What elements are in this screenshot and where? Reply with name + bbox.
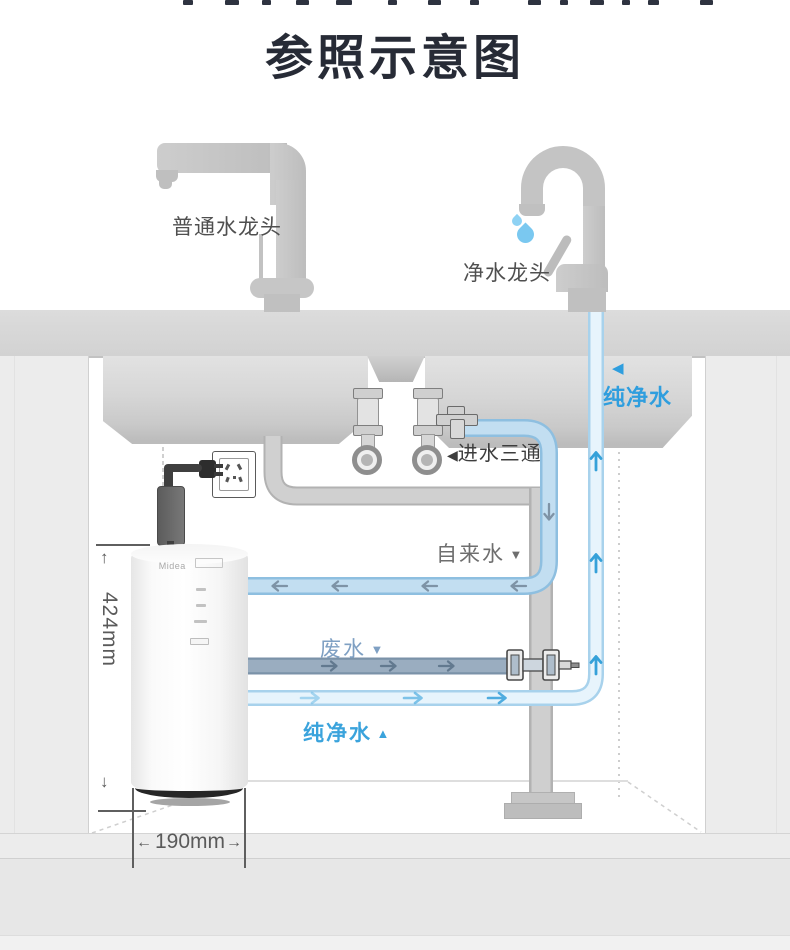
inlet-tee-label: ◀进水三通 xyxy=(447,437,542,466)
faucet-ordinary-label: 普通水龙头 xyxy=(172,211,282,241)
dim-arrow-right: → xyxy=(226,834,242,852)
device-height-value: 424mm xyxy=(97,592,121,667)
dim-tick-left xyxy=(132,788,134,868)
perspective-dash-right xyxy=(628,782,701,832)
indicator-display xyxy=(190,638,209,645)
pure-water-bottom-label: 纯净水 xyxy=(303,722,372,745)
indicator-mark xyxy=(196,588,206,591)
device-width-value: 190mm xyxy=(155,830,225,854)
tap-water-label: 自来水 xyxy=(436,543,505,566)
pure-water-top-label: 纯净水 xyxy=(603,380,672,412)
up-triangle-icon: ▲ xyxy=(376,726,389,741)
faucet-ordinary-pedestal xyxy=(264,294,300,312)
dim-tick-top xyxy=(96,544,150,546)
faucet-purified-neck xyxy=(583,206,605,270)
dim-tick-bottom xyxy=(98,810,146,812)
faucet-purified-label: 净水龙头 xyxy=(463,257,551,287)
connector-body xyxy=(357,398,379,427)
dim-arrow-up: ↑ xyxy=(100,548,109,568)
indicator-mark xyxy=(196,604,206,607)
down-triangle-icon: ▼ xyxy=(509,547,522,562)
left-triangle-icon: ◀ xyxy=(612,359,672,377)
faucet-purified-spout xyxy=(519,204,545,216)
pure-water-top-annotation: ◀ 纯净水 xyxy=(612,359,672,412)
down-triangle-icon: ▼ xyxy=(370,642,383,657)
faucet-purified-pedestal xyxy=(568,288,606,312)
outlet-slot xyxy=(233,476,236,479)
dim-arrow-down: ↓ xyxy=(100,772,109,792)
pure-water-bottom-annotation: 纯净水 ▲ xyxy=(303,717,389,747)
adapter-body xyxy=(157,486,185,546)
brand-logo: Midea xyxy=(159,561,186,571)
dim-tick-right xyxy=(244,788,246,868)
tap-water-annotation: 自来水 ▼ xyxy=(436,538,522,568)
waste-water-annotation: 废水 ▼ xyxy=(320,633,383,663)
purifier-cylinder xyxy=(131,544,248,796)
dim-arrow-left: ← xyxy=(136,834,152,852)
indicator-mark xyxy=(194,620,207,623)
valve-outlet-nut xyxy=(450,419,465,439)
plug-prong xyxy=(214,472,223,476)
purifier-base-ring xyxy=(135,778,243,798)
waste-water-label: 废水 xyxy=(320,638,366,661)
pipes-layer xyxy=(0,0,790,950)
faucet-ordinary-spout-tip xyxy=(159,180,172,189)
purifier-base-shadow xyxy=(150,798,230,806)
drain-clamp-fitting xyxy=(507,650,579,680)
left-triangle-icon: ◀ xyxy=(447,447,458,463)
outlet-inner xyxy=(219,458,249,491)
connector-ring-core xyxy=(421,454,433,466)
drain-flange-base xyxy=(504,803,582,819)
plug-prong xyxy=(214,464,223,468)
purifier-logo-row: Midea xyxy=(146,556,236,574)
sub-brand-logo xyxy=(195,558,223,568)
connector-ring-core xyxy=(361,454,373,466)
faucet-ordinary-arm xyxy=(157,143,287,173)
schematic-page: 参照示意图 xyxy=(0,0,790,950)
